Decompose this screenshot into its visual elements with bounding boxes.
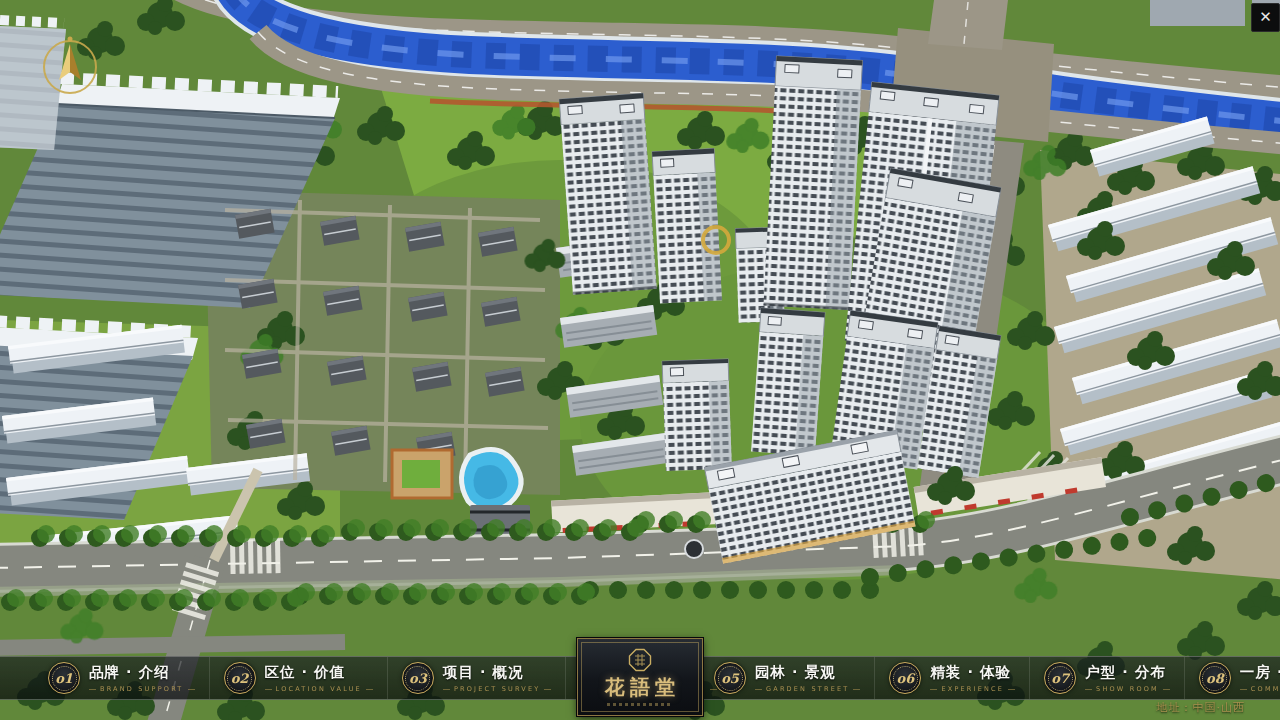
presentation-window: ✕ o1 品牌 · 介绍BRAND SUPPORT o2 区位 · 价值LOCA… (0, 0, 1280, 720)
item-label-zh: 一房 · 一景 (1240, 663, 1280, 682)
item-label-zh: 项目 · 概况 (443, 663, 524, 682)
item-number-badge: o1 (48, 662, 80, 694)
project-address: 地址：中国·山西 (1157, 700, 1246, 715)
item-number: o7 (1051, 671, 1069, 686)
nav-item-one-room-one-view[interactable]: o8 一房 · 一景COMMUNITY (1184, 657, 1280, 699)
nav-item-project-overview[interactable]: o3 项目 · 概况PROJECT SURVEY (387, 657, 566, 699)
logo-inner-frame: 花語堂 (581, 642, 699, 712)
item-label-zh: 精装 · 体验 (930, 663, 1011, 682)
logo-caption (607, 703, 673, 706)
close-icon: ✕ (1259, 10, 1272, 25)
item-label-en: SHOW ROOM (1085, 685, 1170, 693)
masterplan-render[interactable] (0, 0, 1280, 720)
nav-group-left: o1 品牌 · 介绍BRAND SUPPORT o2 区位 · 价值LOCATI… (34, 657, 564, 699)
nav-item-floorplan-distribution[interactable]: o7 户型 · 分布SHOW ROOM (1029, 657, 1184, 699)
nav-item-location-value[interactable]: o2 区位 · 价值LOCATION VALUE (209, 657, 387, 699)
masterplan-svg (0, 0, 1280, 720)
close-button[interactable]: ✕ (1251, 3, 1280, 32)
item-number: o6 (897, 671, 915, 686)
nav-item-brand-intro[interactable]: o1 品牌 · 介绍BRAND SUPPORT (34, 657, 209, 699)
item-number: o1 (55, 671, 73, 686)
item-number: o5 (721, 671, 739, 686)
item-number-badge: o7 (1044, 662, 1076, 694)
item-number: o3 (409, 671, 427, 686)
item-label-zh: 园林 · 景观 (755, 663, 836, 682)
item-label-zh: 品牌 · 介绍 (89, 663, 170, 682)
item-number: o8 (1206, 671, 1224, 686)
item-label-en: LOCATION VALUE (265, 685, 373, 693)
nav-group-right: o5 园林 · 景观GARDEN STREET o6 精装 · 体验EXPERI… (700, 657, 1130, 699)
item-label-en: BRAND SUPPORT (89, 685, 195, 693)
item-label-zh: 区位 · 价值 (265, 663, 346, 682)
item-number-badge: o2 (224, 662, 256, 694)
nav-item-interior-experience[interactable]: o6 精装 · 体验EXPERIENCE (874, 657, 1029, 699)
item-number-badge: o6 (889, 662, 921, 694)
item-number-badge: o8 (1199, 662, 1231, 694)
item-number: o2 (231, 671, 249, 686)
item-label-zh: 户型 · 分布 (1085, 663, 1166, 682)
item-number-badge: o5 (714, 662, 746, 694)
item-label-en: PROJECT SURVEY (443, 685, 552, 693)
item-label-en: EXPERIENCE (930, 685, 1015, 693)
project-logo-title: 花語堂 (600, 674, 680, 701)
nav-item-landscape[interactable]: o5 园林 · 景观GARDEN STREET (700, 657, 874, 699)
seal-icon (628, 648, 652, 672)
item-label-en: COMMUNITY (1240, 685, 1280, 693)
item-number-badge: o3 (402, 662, 434, 694)
item-label-en: GARDEN STREET (755, 685, 860, 693)
project-logo-panel[interactable]: 花語堂 (577, 638, 703, 716)
